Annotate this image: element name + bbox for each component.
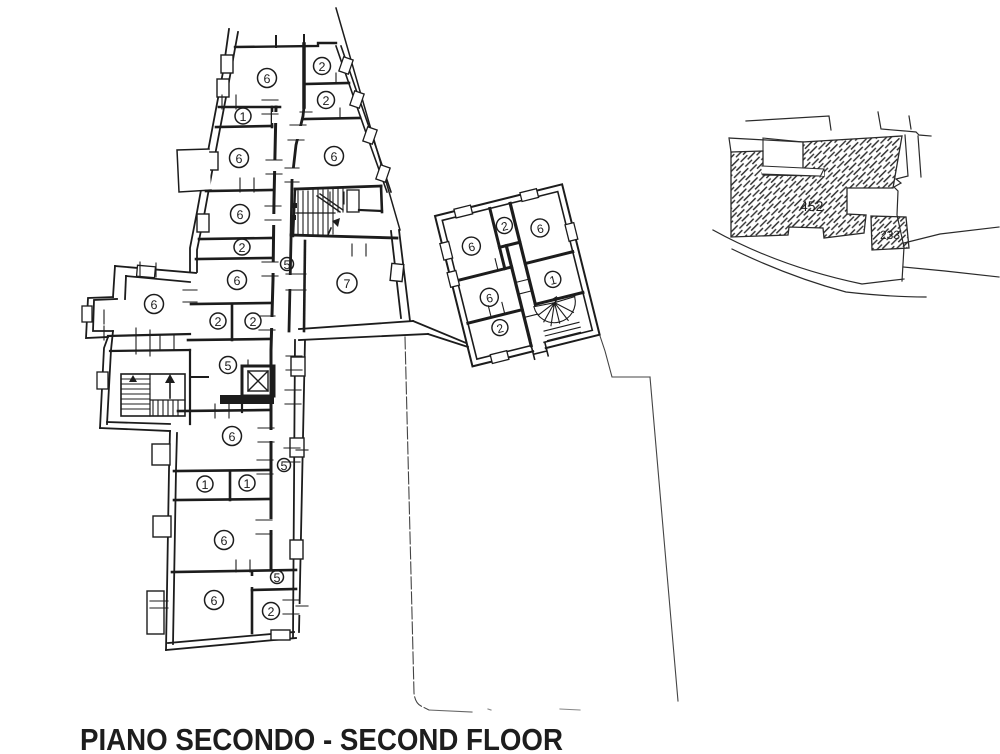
svg-text:5: 5 [274,571,281,585]
svg-text:2: 2 [250,315,257,329]
svg-text:6: 6 [236,152,243,166]
svg-text:6: 6 [151,298,158,312]
svg-text:1: 1 [202,478,209,492]
svg-text:2: 2 [495,321,505,336]
svg-text:2: 2 [268,605,275,619]
svg-text:5: 5 [225,359,232,373]
svg-text:6: 6 [264,72,271,86]
svg-text:2: 2 [323,94,330,108]
svg-text:6: 6 [234,274,241,288]
svg-text:2: 2 [239,241,246,255]
svg-text:7: 7 [344,277,351,291]
svg-text:1: 1 [240,110,247,124]
svg-text:6: 6 [211,594,218,608]
svg-text:6: 6 [485,291,495,306]
svg-text:6: 6 [221,534,228,548]
svg-text:1: 1 [548,273,558,288]
svg-text:5: 5 [281,459,288,473]
svg-text:1: 1 [244,477,251,491]
svg-text:233: 233 [880,228,900,242]
svg-text:2: 2 [500,219,510,234]
svg-text:6: 6 [467,239,477,254]
svg-text:6: 6 [535,221,545,236]
svg-text:5: 5 [284,258,291,272]
svg-text:2: 2 [215,315,222,329]
svg-text:2: 2 [319,60,326,74]
svg-text:452: 452 [800,198,824,214]
svg-text:6: 6 [331,150,338,164]
svg-text:6: 6 [237,208,244,222]
svg-text:6: 6 [229,430,236,444]
